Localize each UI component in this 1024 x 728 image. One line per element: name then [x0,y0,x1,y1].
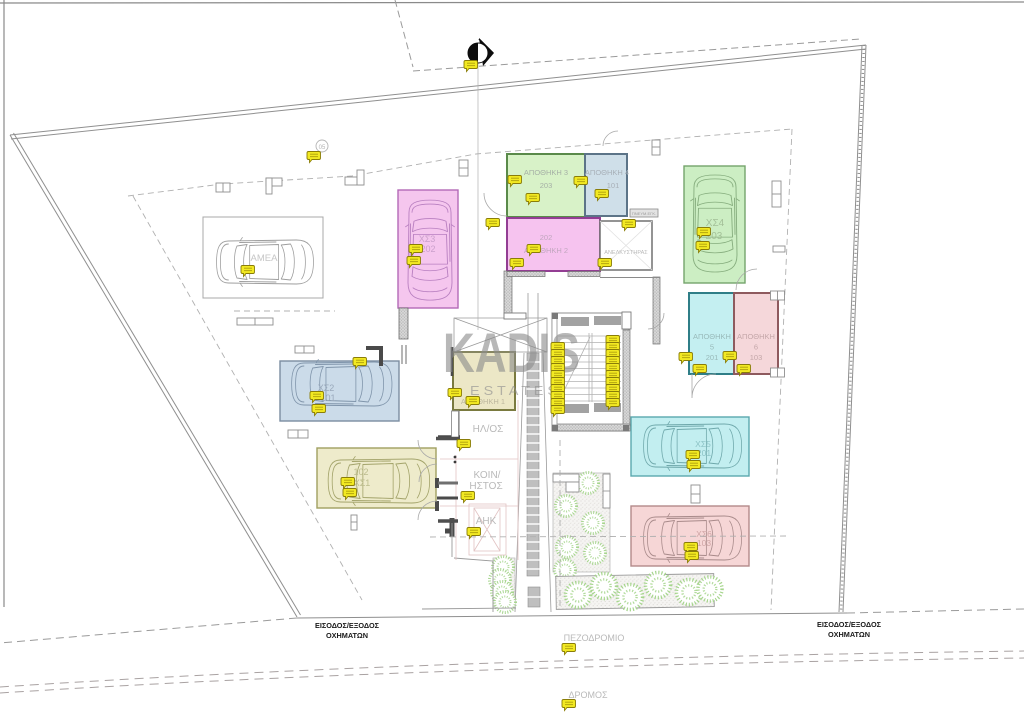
svg-text:ΑΠΟΘΗΚΗ: ΑΠΟΘΗΚΗ [693,332,731,341]
svg-text:ΑΝΕΛΚΥΣΤΗΡΑΣ: ΑΝΕΛΚΥΣΤΗΡΑΣ [604,250,648,256]
svg-text:ΗΣΤΟΣ: ΗΣΤΟΣ [469,481,502,492]
svg-text:103: 103 [750,353,763,362]
svg-text:ΑΠΟΘΗΚΗ: ΑΠΟΘΗΚΗ [737,332,775,341]
svg-text:101: 101 [607,181,620,190]
svg-text:ΑΠΟΘΗΚΗ 3: ΑΠΟΘΗΚΗ 3 [524,168,568,177]
svg-text:ΠΝΕΥΜ.ΕΓΚ.: ΠΝΕΥΜ.ΕΓΚ. [632,211,656,216]
svg-text:103: 103 [697,538,711,548]
svg-text:ΟΧΗΜΑΤΩΝ: ΟΧΗΜΑΤΩΝ [828,630,870,639]
svg-text:ΑΗΚ: ΑΗΚ [476,516,497,527]
svg-text:ΧΣ1: ΧΣ1 [354,478,371,488]
svg-text:ΟΧΗΜΑΤΩΝ: ΟΧΗΜΑΤΩΝ [326,631,368,640]
svg-text:ΑΠΟΘΗΚΗ 4: ΑΠΟΘΗΚΗ 4 [585,168,629,177]
svg-text:ΕΙΣΟΔΟΣ/ΕΞΟΔΟΣ: ΕΙΣΟΔΟΣ/ΕΞΟΔΟΣ [817,620,882,629]
svg-text:ΗΛ/ΟΣ: ΗΛ/ΟΣ [473,424,504,435]
svg-text:202: 202 [540,233,553,242]
svg-text:E S T A T E S: E S T A T E S [470,383,557,398]
svg-text:5: 5 [710,343,714,352]
svg-text:ΔΡΟΜΟΣ: ΔΡΟΜΟΣ [568,690,608,700]
svg-text:05: 05 [319,145,326,151]
svg-text:ΠΕΖΟΔΡΟΜΙΟ: ΠΕΖΟΔΡΟΜΙΟ [564,633,625,643]
svg-text:102: 102 [353,467,368,477]
svg-text:203: 203 [540,181,553,190]
svg-text:ΑΜΕΑ: ΑΜΕΑ [251,253,279,264]
svg-text:ΧΣ3: ΧΣ3 [419,234,436,244]
svg-text:ΕΙΣΟΔΟΣ/ΕΞΟΔΟΣ: ΕΙΣΟΔΟΣ/ΕΞΟΔΟΣ [315,621,380,630]
svg-text:ΚΟΙΝ/: ΚΟΙΝ/ [474,470,501,481]
svg-text:201: 201 [706,353,719,362]
svg-text:6: 6 [754,343,758,352]
